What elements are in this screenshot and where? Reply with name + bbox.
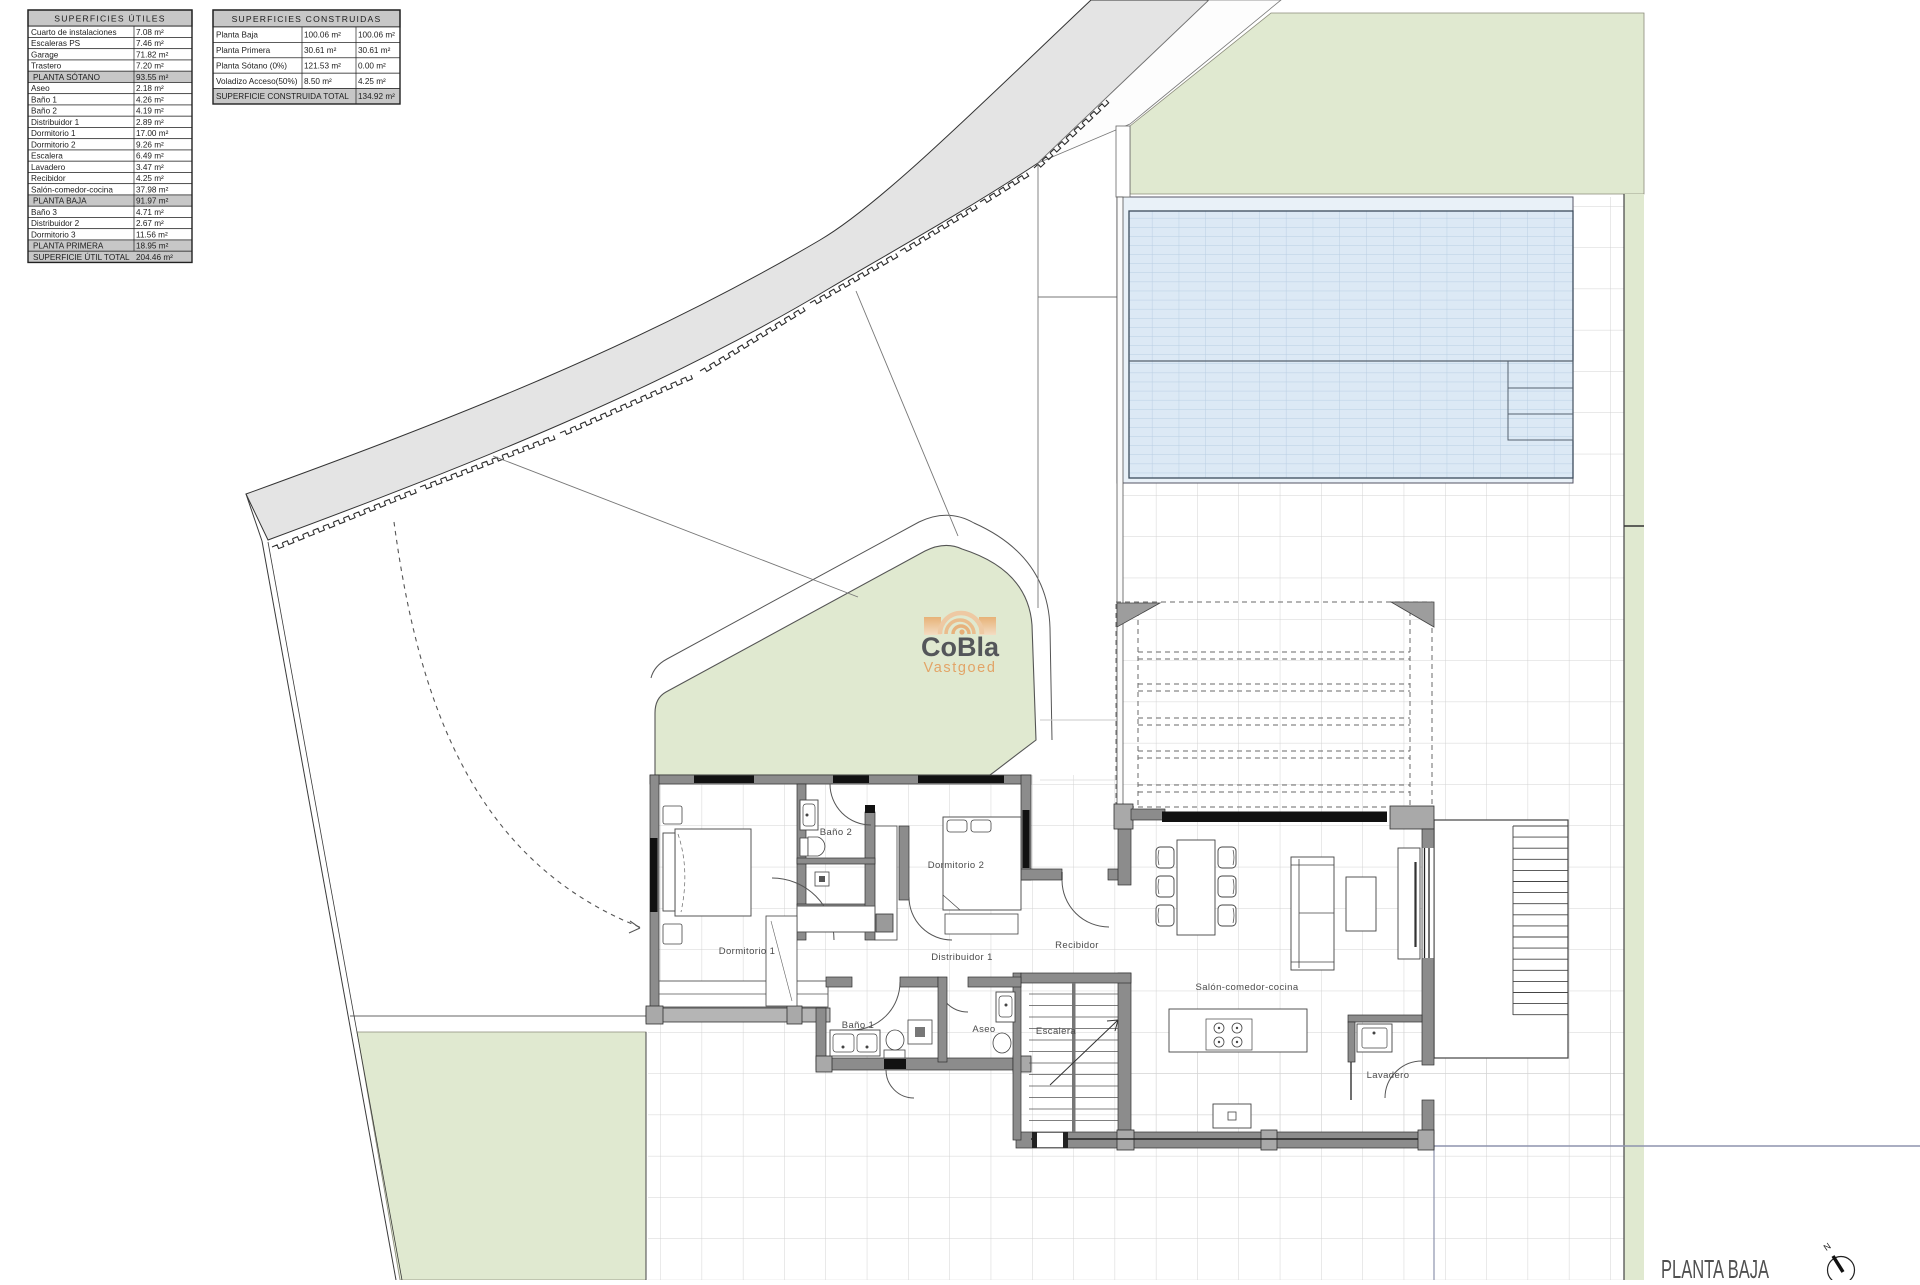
svg-text:7.20 m²: 7.20 m²	[136, 62, 164, 71]
svg-text:Dormitorio 1: Dormitorio 1	[719, 946, 776, 957]
svg-text:8.50 m²: 8.50 m²	[304, 77, 332, 86]
svg-text:Escaleras PS: Escaleras PS	[31, 39, 81, 48]
svg-text:30.61 m²: 30.61 m²	[358, 46, 391, 55]
svg-text:Lavadero: Lavadero	[31, 163, 66, 172]
svg-text:Voladizo Acceso(50%): Voladizo Acceso(50%)	[216, 77, 298, 86]
svg-text:Vastgoed: Vastgoed	[924, 660, 997, 676]
svg-text:18.95 m²: 18.95 m²	[136, 242, 169, 251]
svg-text:204.46 m²: 204.46 m²	[136, 253, 173, 262]
svg-text:Lavadero: Lavadero	[1367, 1070, 1410, 1081]
svg-text:Dormitorio 2: Dormitorio 2	[31, 140, 76, 149]
svg-text:Dormitorio 2: Dormitorio 2	[928, 860, 985, 871]
svg-text:Baño 1: Baño 1	[31, 95, 57, 104]
svg-text:4.19 m²: 4.19 m²	[136, 107, 164, 116]
svg-text:7.46 m²: 7.46 m²	[136, 39, 164, 48]
svg-text:2.67 m²: 2.67 m²	[136, 219, 164, 228]
svg-text:PLANTA BAJA: PLANTA BAJA	[1661, 1254, 1769, 1280]
svg-text:7.08 m²: 7.08 m²	[136, 28, 164, 37]
svg-text:Dormitorio 3: Dormitorio 3	[31, 230, 76, 239]
svg-text:SUPERFICIE CONSTRUIDA TOTAL: SUPERFICIE CONSTRUIDA TOTAL	[216, 92, 349, 101]
svg-text:17.00 m²: 17.00 m²	[136, 129, 169, 138]
svg-text:Distribuidor 1: Distribuidor 1	[931, 952, 993, 963]
svg-text:37.98 m²: 37.98 m²	[136, 185, 169, 194]
svg-text:Baño 2: Baño 2	[31, 107, 57, 116]
svg-text:Baño 3: Baño 3	[31, 208, 57, 217]
svg-text:Planta Sótano (0%): Planta Sótano (0%)	[216, 61, 287, 70]
svg-text:Salón-comedor-cocina: Salón-comedor-cocina	[31, 185, 113, 194]
svg-text:9.26 m²: 9.26 m²	[136, 140, 164, 149]
svg-text:6.49 m²: 6.49 m²	[136, 152, 164, 161]
svg-text:0.00 m²: 0.00 m²	[358, 61, 386, 70]
svg-text:Baño 1: Baño 1	[842, 1020, 875, 1031]
svg-text:PLANTA BAJA: PLANTA BAJA	[33, 197, 87, 206]
svg-text:PLANTA SÓTANO: PLANTA SÓTANO	[33, 72, 100, 82]
svg-text:4.71 m²: 4.71 m²	[136, 208, 164, 217]
svg-text:SUPERFICIES ÚTILES: SUPERFICIES ÚTILES	[54, 14, 165, 24]
svg-text:Baño 2: Baño 2	[820, 827, 853, 838]
svg-text:Recibidor: Recibidor	[1055, 940, 1099, 951]
svg-text:4.26 m²: 4.26 m²	[136, 95, 164, 104]
svg-text:Cuarto de instalaciones: Cuarto de instalaciones	[31, 28, 117, 37]
svg-text:Escalera: Escalera	[31, 152, 63, 161]
svg-text:134.92 m²: 134.92 m²	[358, 92, 395, 101]
svg-text:Recibidor: Recibidor	[31, 174, 66, 183]
svg-text:11.56 m²: 11.56 m²	[136, 230, 168, 239]
svg-text:2.89 m²: 2.89 m²	[136, 118, 164, 127]
svg-text:CoBla: CoBla	[921, 632, 1000, 662]
svg-text:71.82 m²: 71.82 m²	[136, 50, 169, 59]
svg-text:Aseo: Aseo	[972, 1024, 995, 1035]
svg-text:Aseo: Aseo	[31, 84, 50, 93]
svg-text:PLANTA PRIMERA: PLANTA PRIMERA	[33, 242, 104, 251]
svg-text:4.25 m²: 4.25 m²	[358, 77, 386, 86]
svg-text:2.18 m²: 2.18 m²	[136, 84, 164, 93]
svg-text:3.47 m²: 3.47 m²	[136, 163, 164, 172]
svg-text:Salón-comedor-cocina: Salón-comedor-cocina	[1195, 982, 1298, 993]
svg-text:100.06 m²: 100.06 m²	[304, 31, 341, 40]
svg-text:Distribuidor 1: Distribuidor 1	[31, 118, 80, 127]
svg-text:Garage: Garage	[31, 50, 59, 59]
svg-text:Planta Primera: Planta Primera	[216, 46, 271, 55]
svg-text:Escalera: Escalera	[1036, 1026, 1076, 1037]
svg-text:93.55 m²: 93.55 m²	[136, 73, 169, 82]
svg-text:Distribuidor 2: Distribuidor 2	[31, 219, 80, 228]
svg-text:SUPERFICIE ÚTIL TOTAL: SUPERFICIE ÚTIL TOTAL	[33, 252, 130, 262]
svg-text:30.61 m²: 30.61 m²	[304, 46, 337, 55]
svg-text:Dormitorio 1: Dormitorio 1	[31, 129, 76, 138]
svg-text:4.25 m²: 4.25 m²	[136, 174, 164, 183]
svg-text:91.97 m²: 91.97 m²	[136, 197, 169, 206]
svg-text:SUPERFICIES CONSTRUIDAS: SUPERFICIES CONSTRUIDAS	[232, 14, 382, 24]
svg-text:121.53 m²: 121.53 m²	[304, 61, 341, 70]
svg-text:Planta Baja: Planta Baja	[216, 31, 258, 40]
svg-text:Trastero: Trastero	[31, 62, 62, 71]
svg-text:100.06 m²: 100.06 m²	[358, 31, 395, 40]
